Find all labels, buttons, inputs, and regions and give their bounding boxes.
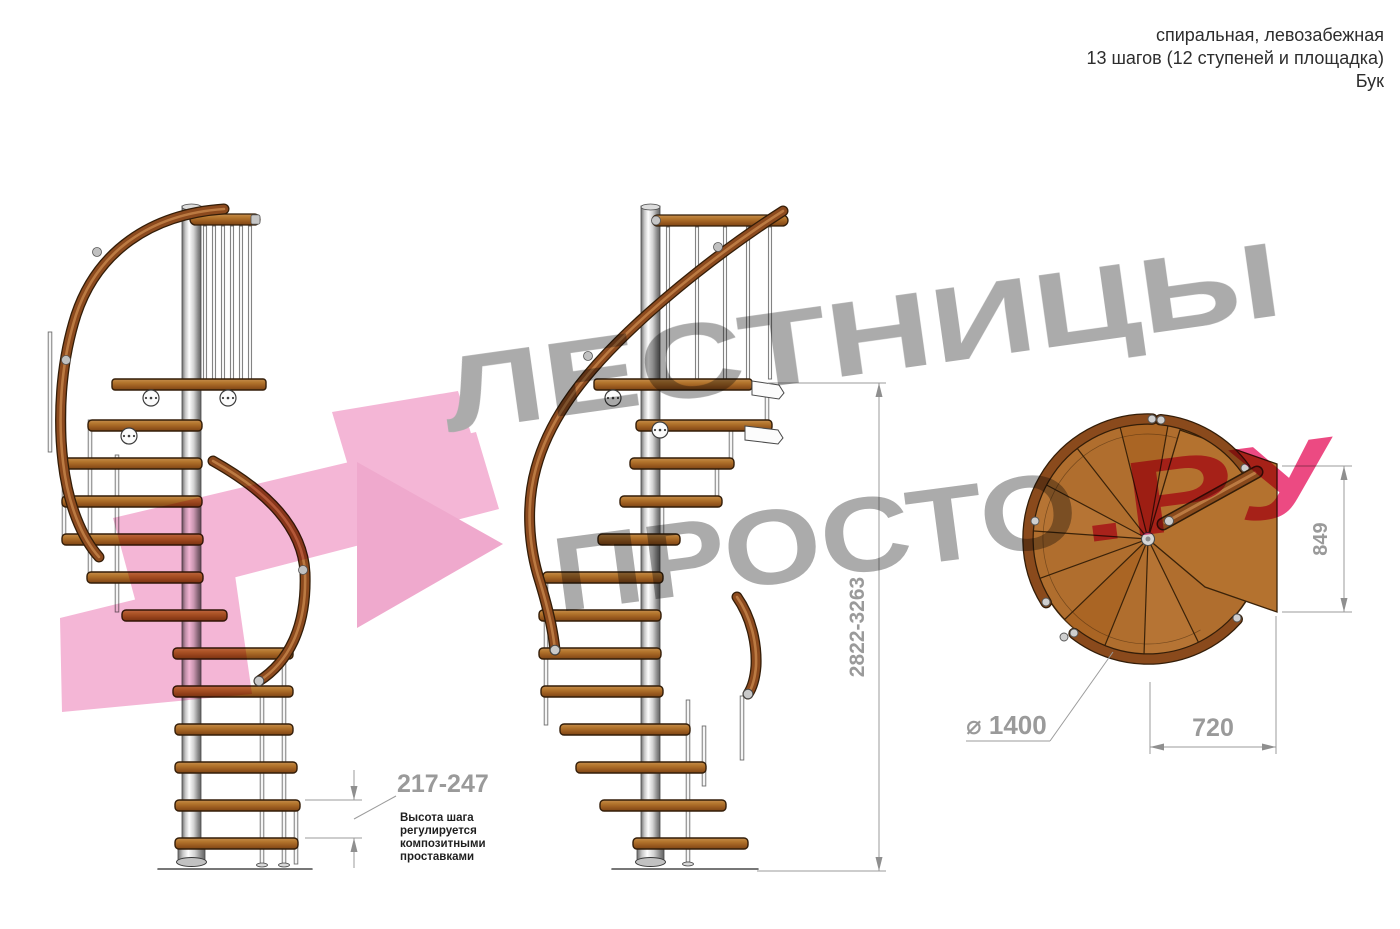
dim-step-height — [305, 770, 396, 868]
title-block: спиральная, левозабежная 13 шагов (12 ст… — [1086, 24, 1384, 93]
landing-platform — [112, 379, 266, 390]
watermark-word-bottom: ПРОСТО — [546, 449, 1085, 635]
pole-base-flange — [636, 858, 666, 867]
wall-bracket — [745, 426, 783, 444]
drawing-sheet: спиральная, левозабежная 13 шагов (12 ст… — [0, 0, 1400, 929]
pole-base-flange — [177, 858, 207, 867]
dim-label-diameter: ⌀ 1400 — [966, 710, 1047, 740]
title-line-steps: 13 шагов (12 ступеней и площадка) — [1086, 47, 1384, 70]
note-line-1: Высота шага — [400, 812, 474, 824]
title-line-material: Бук — [1086, 70, 1384, 93]
dim-label-plan-width: 720 — [1192, 714, 1234, 742]
note-line-3: композитными — [400, 838, 486, 850]
note-line-2: регулируется — [400, 825, 477, 837]
dim-label-step-height: 217-247 — [397, 770, 489, 798]
title-line-type: спиральная, левозабежная — [1086, 24, 1384, 47]
mount-discs — [121, 390, 236, 444]
note-line-4: проставками — [400, 851, 474, 863]
step-height-note: Высота шага регулируется композитными пр… — [400, 812, 486, 863]
staircase-drawing: 2822-3263 849 720 ⌀ 1400 217-247 Высота … — [0, 0, 1400, 929]
